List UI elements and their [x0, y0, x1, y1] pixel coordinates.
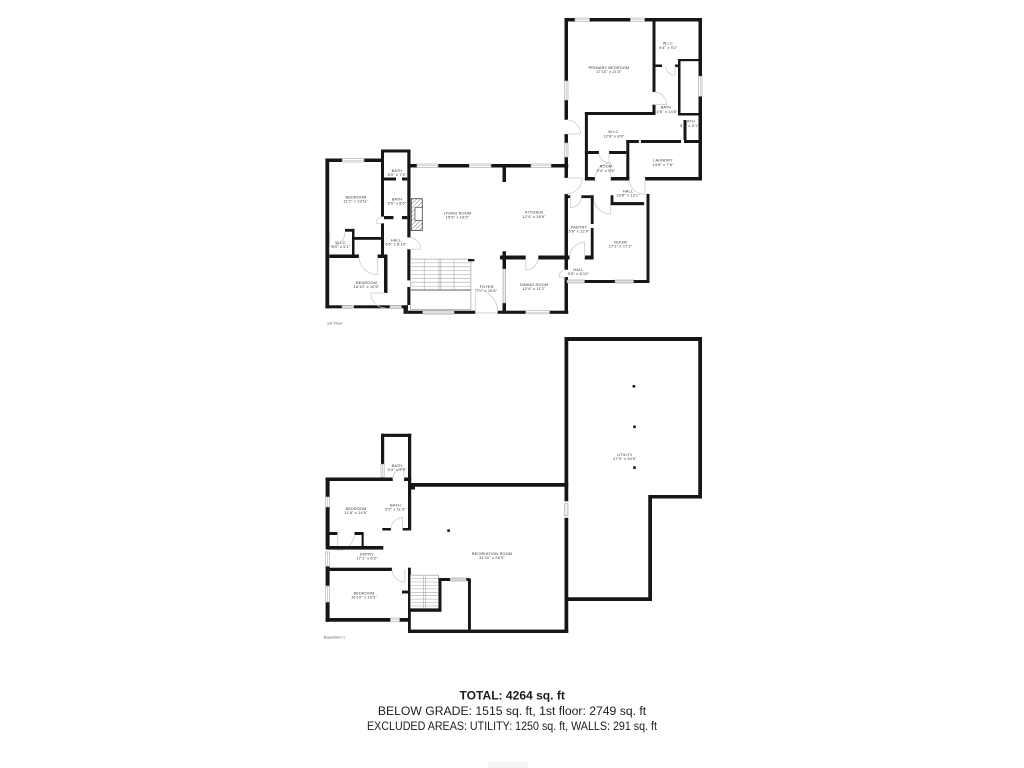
svg-text:LIVING ROOM15'6" x 19'2": LIVING ROOM15'6" x 19'2"	[444, 211, 472, 219]
svg-text:DINING ROOM12'4" x 11'2": DINING ROOM12'4" x 11'2"	[520, 283, 548, 291]
svg-text:BEDROOM16'10" x 10'5": BEDROOM16'10" x 10'5"	[354, 281, 380, 289]
svg-text:BEDROOM11'2" x 13'11": BEDROOM11'2" x 13'11"	[343, 195, 369, 203]
svg-text:EXCLUDED AREAS: UTILITY: 1250: EXCLUDED AREAS: UTILITY: 1250 sq. ft, WA…	[367, 719, 657, 733]
svg-text:BEDROOM11'8" x 14'6": BEDROOM11'8" x 14'6"	[344, 507, 368, 515]
svg-text:BELOW GRADE: 1515 sq. ft, 1st: BELOW GRADE: 1515 sq. ft, 1st floor: 274…	[378, 704, 647, 718]
svg-text:BEDROOM16'10" x 10'5": BEDROOM16'10" x 10'5"	[351, 591, 377, 599]
svg-text:KITCHEN12'4" x 18'9": KITCHEN12'4" x 18'9"	[522, 211, 546, 219]
svg-text:1st Floor: 1st Floor	[327, 321, 343, 325]
svg-text:TOTAL: 4264 sq. ft: TOTAL: 4264 sq. ft	[460, 689, 565, 703]
svg-text:Basement 1: Basement 1	[324, 636, 345, 640]
svg-text:LAUNDRY14'6" x 7'6": LAUNDRY14'6" x 7'6"	[652, 159, 674, 167]
svg-text:PANTRY5'8" x 12'9": PANTRY5'8" x 12'9"	[568, 225, 590, 233]
